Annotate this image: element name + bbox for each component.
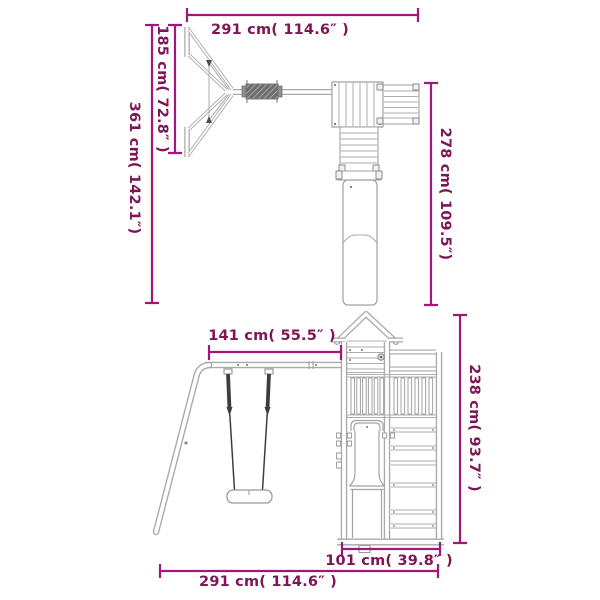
frame-depth-label: 185 cm( 72.8″ ) [153,19,171,159]
slide-top [343,180,377,305]
bottom-width-label: 291 cm( 114.6″ ) [168,573,368,591]
overall-depth-label: 361 cm( 142.1″) [125,98,143,238]
swing-frame-front [156,361,342,532]
swing-width-label: 141 cm( 55.5″ ) [172,327,372,345]
ladder-front [391,428,436,528]
slide-front [350,421,385,539]
tower-depth-label: 278 cm( 109.5″) [436,124,454,264]
playset-line-drawing [0,0,600,600]
front-view-drawing [156,314,444,553]
dim-line-top-width [187,8,418,22]
tower-width-label: 101 cm( 39.8″ ) [289,552,489,570]
height-label: 238 cm( 93.7″ ) [465,358,483,498]
swing-frame-top [187,27,333,157]
top-width-label: 291 cm( 114.6″ ) [180,21,380,39]
tower-top [332,82,419,305]
dim-line-swing-width [209,345,341,360]
tower-front [331,314,444,553]
dimension-diagram: 291 cm( 114.6″ ) 185 cm( 72.8″ ) 361 cm(… [0,0,600,600]
top-view-drawing [187,27,419,305]
swing-hanger-block-top [242,80,282,103]
swing-front [224,369,273,503]
